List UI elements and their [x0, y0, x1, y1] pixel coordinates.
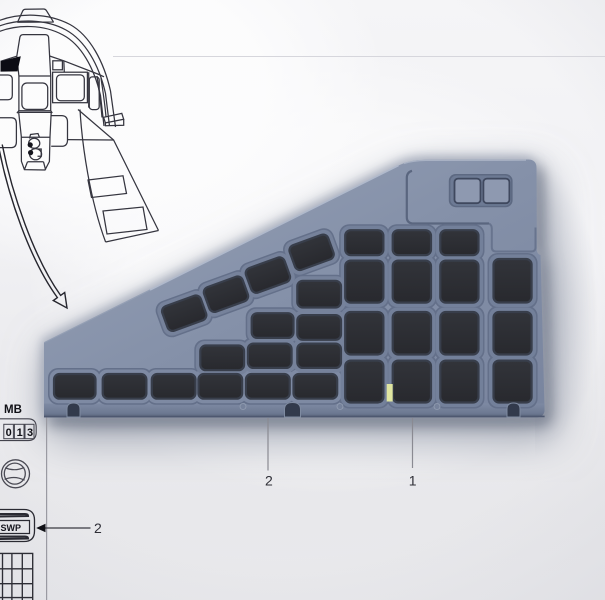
svg-text:3: 3	[27, 427, 33, 439]
svg-text:SWP: SWP	[1, 523, 22, 533]
svg-text:0: 0	[6, 427, 12, 439]
svg-text:2: 2	[94, 520, 102, 536]
svg-text:1: 1	[409, 473, 417, 489]
svg-text:2: 2	[265, 473, 273, 489]
svg-text:MB: MB	[4, 404, 22, 416]
svg-text:1: 1	[17, 427, 23, 439]
